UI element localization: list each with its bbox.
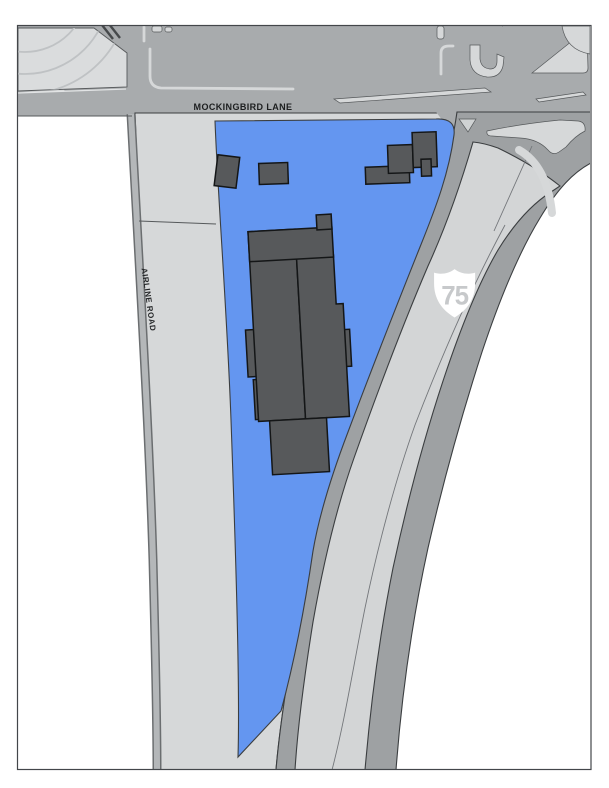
driveway-blob — [152, 26, 162, 32]
site-plan-map: MOCKINGBIRD LANE AIRLINE ROAD 75 — [0, 0, 609, 788]
driveway-blob — [437, 26, 444, 39]
outbuilding-west — [214, 155, 240, 188]
driveway-blob — [165, 27, 172, 32]
map-canvas: MOCKINGBIRD LANE AIRLINE ROAD 75 — [0, 0, 609, 788]
street-label-mockingbird: MOCKINGBIRD LANE — [194, 102, 293, 112]
northwest-block — [0, 0, 129, 94]
main-building-tower — [316, 214, 332, 230]
main-building-south-annex — [270, 418, 330, 475]
shield-number: 75 — [441, 280, 468, 310]
survey-mark — [502, 17, 513, 26]
main-building-north-section — [248, 227, 334, 262]
outbuilding-center — [259, 162, 289, 184]
